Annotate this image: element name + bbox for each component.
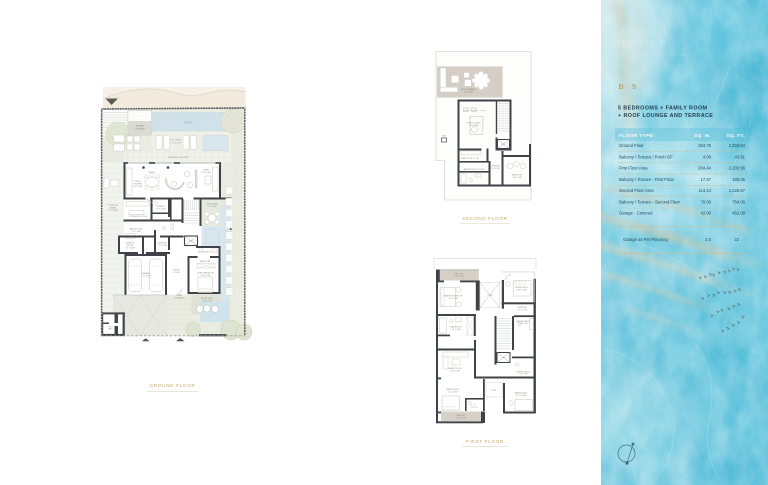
svg-text:SQ. M.: SQ. M. [694, 133, 711, 139]
svg-text:Balcony / Terrace / Porch GF: Balcony / Terrace / Porch GF [619, 154, 673, 159]
svg-text:VOID: VOID [492, 390, 497, 392]
svg-text:1.4 X 2.2M: 1.4 X 2.2M [156, 209, 166, 211]
svg-text:2.3 X 3.0M: 2.3 X 3.0M [131, 231, 141, 233]
svg-text:VOID: VOID [487, 295, 493, 297]
svg-text:2.3 X 1.7M: 2.3 X 1.7M [519, 323, 528, 325]
svg-text:2.3 X 3.0M: 2.3 X 3.0M [125, 248, 135, 250]
svg-text:PALM JUMEIRAH RESIDENCES: PALM JUMEIRAH RESIDENCES [619, 53, 688, 57]
svg-text:Balcony / Terrace - Second Flo: Balcony / Terrace - Second Floor [619, 200, 681, 205]
svg-text:KITCHEN 4.1 X 3.5M: KITCHEN 4.1 X 3.5M [129, 216, 147, 218]
svg-text:204.44: 204.44 [698, 166, 711, 171]
svg-text:22: 22 [734, 237, 739, 242]
svg-text:FAMILY ROOM: FAMILY ROOM [449, 367, 462, 370]
svg-text:PANTRY 1.8 X 1.7M: PANTRY 1.8 X 1.7M [461, 157, 479, 160]
svg-text:1.2 X 3.2M: 1.2 X 3.2M [171, 142, 181, 144]
svg-text:FOYER: FOYER [173, 272, 180, 274]
svg-text:MAID'S ROOM: MAID'S ROOM [130, 228, 143, 231]
svg-text:2.3 X 1.9M: 2.3 X 1.9M [519, 374, 528, 376]
svg-text:8.3 X 5.0M: 8.3 X 5.0M [464, 92, 474, 94]
svg-text:2.4 X 2.9M: 2.4 X 2.9M [451, 329, 461, 331]
svg-text:LAUNDRY: LAUNDRY [157, 242, 167, 245]
svg-text:BATHROOM 2.4 X 1.5M: BATHROOM 2.4 X 1.5M [464, 168, 485, 171]
svg-text:4.0 X 4.4M: 4.0 X 4.4M [512, 177, 522, 179]
svg-text:3.7 X 4.4M: 3.7 X 4.4M [207, 206, 217, 208]
svg-text:42.00: 42.00 [701, 211, 712, 216]
svg-text:3.25 X 4.0M: 3.25 X 4.0M [516, 395, 527, 397]
svg-text:70.06: 70.06 [701, 200, 712, 205]
svg-text:188.05: 188.05 [732, 177, 745, 182]
svg-text:E L L I N G T O N: E L L I N G T O N [619, 11, 674, 15]
svg-text:B 5: B 5 [619, 82, 640, 91]
svg-text:Second Floor Area: Second Floor Area [619, 188, 654, 193]
svg-text:2.9 X 3.0M: 2.9 X 3.0M [135, 128, 145, 130]
svg-text:2.2 X 1.1M: 2.2 X 1.1M [454, 276, 464, 278]
svg-text:2,203.94: 2,203.94 [729, 143, 746, 148]
svg-text:754.06: 754.06 [732, 200, 745, 205]
svg-text:First Floor Area: First Floor Area [619, 166, 648, 171]
svg-text:WARDROBE: WARDROBE [200, 260, 211, 263]
svg-text:3.25 X 4.0M: 3.25 X 4.0M [516, 290, 527, 292]
svg-text:SITTING: SITTING [136, 126, 144, 128]
svg-text:2.6 X 1.1M: 2.6 X 1.1M [456, 417, 466, 419]
svg-text:204.76: 204.76 [698, 143, 711, 148]
svg-text:FLOOR TYPE: FLOOR TYPE [619, 133, 654, 139]
svg-text:4.2 X 5.4M: 4.2 X 5.4M [201, 172, 211, 174]
svg-text:3.1 X 3.6M: 3.1 X 3.6M [448, 392, 458, 394]
svg-text:1,228.57: 1,228.57 [729, 188, 746, 193]
svg-text:TERRACE 14.4 X 2.2M: TERRACE 14.4 X 2.2M [168, 156, 188, 159]
svg-text:POOL: POOL [185, 121, 194, 125]
svg-text:HOUSE: HOUSE [618, 39, 669, 50]
svg-text:PLOT: PLOT [108, 327, 112, 329]
svg-text:5.5 X 5.5M: 5.5 X 5.5M [141, 276, 151, 278]
svg-text:Ground Floor: Ground Floor [619, 143, 644, 148]
svg-text:ROOF TERRACE: ROOF TERRACE [461, 88, 477, 91]
svg-text:MASTER BEDROOM: MASTER BEDROOM [444, 295, 463, 298]
svg-text:BALCONY: BALCONY [454, 273, 464, 276]
svg-text:17.47: 17.47 [701, 177, 712, 182]
svg-text:3.4 X 3.2M: 3.4 X 3.2M [450, 370, 460, 372]
svg-text:3.3 X 4.1M: 3.3 X 4.1M [201, 275, 211, 277]
svg-text:BALCONY: BALCONY [456, 414, 466, 417]
svg-text:3.1 X 4.3M: 3.1 X 4.3M [108, 210, 118, 212]
svg-text:2.0: 2.0 [705, 237, 711, 242]
svg-text:+ ROOF LOUNGE AND TERRACE: + ROOF LOUNGE AND TERRACE [618, 113, 713, 119]
svg-text:BATHROOM: BATHROOM [451, 326, 462, 329]
svg-text:4.08: 4.08 [703, 154, 712, 159]
svg-text:COURTYARD: COURTYARD [206, 203, 218, 206]
svg-text:452.08: 452.08 [732, 211, 745, 216]
svg-text:1.7 X 2.2M: 1.7 X 2.2M [491, 168, 500, 170]
svg-text:Garage - Covered: Garage - Covered [619, 211, 653, 216]
svg-text:5 BEDROOMS + FAMILY ROOM: 5 BEDROOMS + FAMILY ROOM [618, 106, 708, 112]
svg-text:MAIN: MAIN [177, 294, 182, 297]
svg-text:43.91: 43.91 [735, 154, 746, 159]
svg-text:3.9 X 4.7M: 3.9 X 4.7M [448, 298, 458, 300]
svg-text:114.14: 114.14 [699, 188, 712, 193]
svg-text:GARAGE: GARAGE [142, 272, 151, 275]
svg-text:DINING: DINING [149, 172, 156, 174]
svg-text:SQ. FT.: SQ. FT. [726, 133, 745, 139]
svg-text:POOL DECK: POOL DECK [171, 140, 183, 142]
svg-text:Balcony / Terrace - First Floo: Balcony / Terrace - First Floor [619, 177, 674, 182]
svg-text:2,200.56: 2,200.56 [729, 166, 746, 171]
svg-text:2.4 X 3.5M: 2.4 X 3.5M [133, 186, 143, 188]
svg-text:Garage as Per Planning: Garage as Per Planning [623, 237, 668, 242]
svg-text:1.9 X 2.2: 1.9 X 2.2 [471, 407, 478, 409]
svg-text:1.7 X 1.9M: 1.7 X 1.9M [157, 245, 167, 247]
svg-text:5.9 X 5.6M: 5.9 X 5.6M [469, 125, 479, 127]
svg-text:1.5 X 1.7M: 1.5 X 1.7M [518, 309, 527, 311]
svg-text:BEACH: BEACH [618, 26, 670, 37]
